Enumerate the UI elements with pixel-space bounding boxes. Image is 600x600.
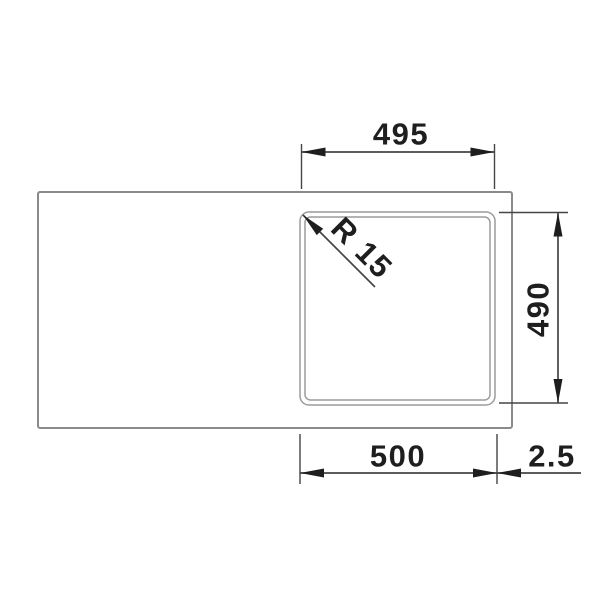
- sink-outer-edge: [38, 192, 512, 428]
- dim-label-right-height: 490: [521, 281, 556, 337]
- arrow-left-icon: [302, 148, 326, 157]
- arrow-left-icon: [497, 469, 521, 478]
- dim-label-bottom-width: 500: [370, 439, 426, 474]
- dimension-labels-group: 495 490 500 2.5 R 15: [324, 117, 575, 474]
- arrow-left-icon: [300, 469, 324, 478]
- sink-outline-group: [38, 192, 512, 428]
- arrow-down-icon: [554, 379, 563, 403]
- arrow-up-left-icon: [300, 212, 323, 235]
- drawing-svg: 495 490 500 2.5 R 15: [0, 0, 600, 600]
- arrow-right-icon: [473, 469, 497, 478]
- dim-label-edge-offset: 2.5: [528, 439, 576, 474]
- arrow-up-icon: [554, 213, 563, 237]
- arrow-right-icon: [471, 148, 495, 157]
- dim-label-top-width: 495: [373, 117, 429, 152]
- sink-technical-drawing: 495 490 500 2.5 R 15: [0, 0, 600, 600]
